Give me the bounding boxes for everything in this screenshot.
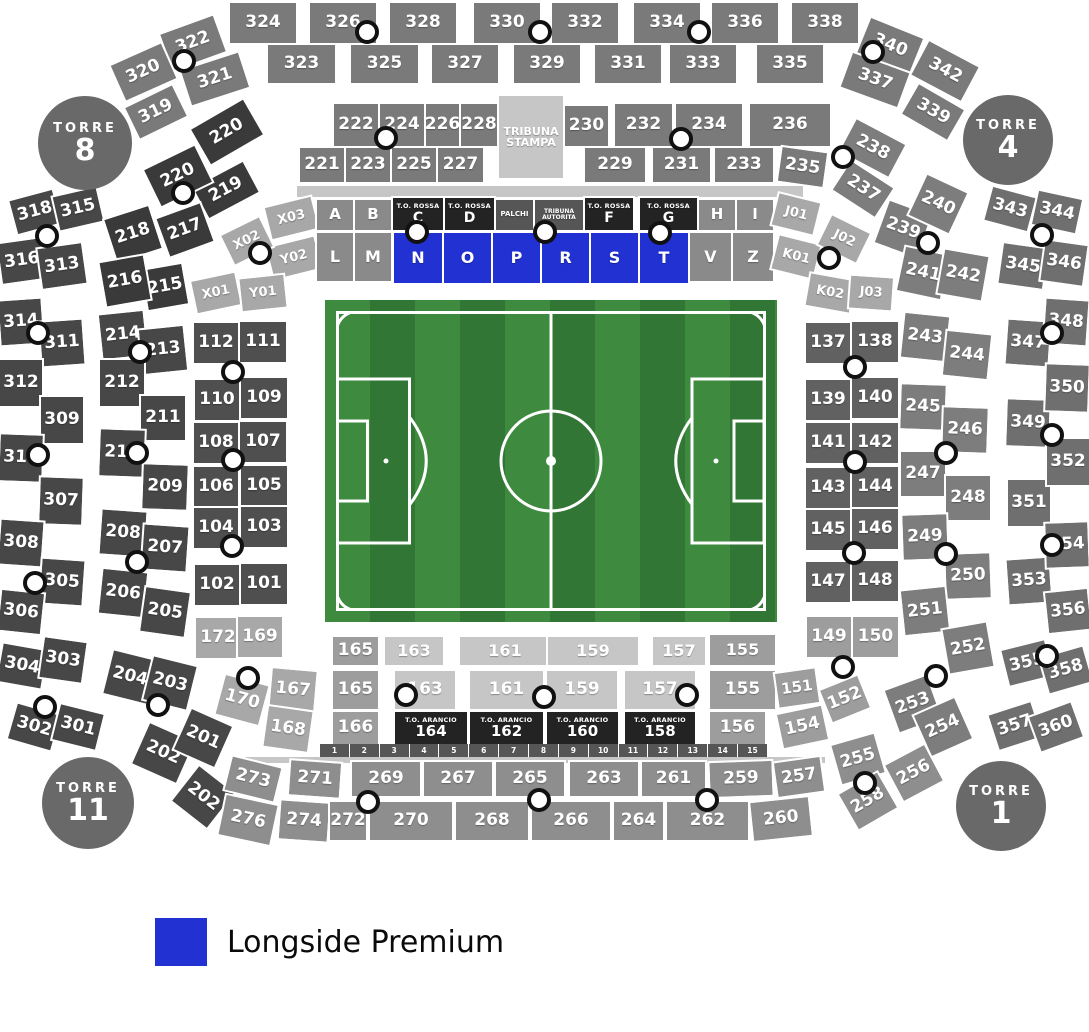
section-v[interactable]: V bbox=[690, 233, 731, 281]
gate-marker bbox=[128, 340, 152, 364]
section-160[interactable]: T.O. ARANCIO160 bbox=[547, 712, 618, 744]
section-140[interactable]: 140 bbox=[852, 378, 898, 418]
section-163[interactable]: 163 bbox=[385, 637, 443, 665]
gate-marker bbox=[236, 666, 260, 690]
section-245[interactable]: 245 bbox=[900, 384, 946, 430]
gate-marker bbox=[843, 450, 867, 474]
section-221[interactable]: 221 bbox=[300, 148, 344, 182]
gate-marker bbox=[248, 241, 272, 265]
section-159[interactable]: 159 bbox=[548, 637, 638, 665]
gate-marker bbox=[23, 571, 47, 595]
section-229[interactable]: 229 bbox=[585, 148, 645, 182]
section-243[interactable]: 243 bbox=[901, 313, 949, 361]
section-101[interactable]: 101 bbox=[241, 564, 287, 604]
section-242[interactable]: 242 bbox=[938, 250, 989, 301]
row-number-12: 12 bbox=[648, 744, 678, 757]
section-172[interactable]: 172 bbox=[196, 618, 240, 658]
gate-marker bbox=[532, 685, 556, 709]
section-351[interactable]: 351 bbox=[1008, 480, 1050, 526]
section-228[interactable]: 228 bbox=[461, 104, 497, 146]
gate-marker bbox=[405, 220, 429, 244]
gate-marker bbox=[669, 127, 693, 151]
gate-marker bbox=[934, 441, 958, 465]
section-j03[interactable]: J03 bbox=[849, 276, 893, 311]
section-155[interactable]: 155 bbox=[710, 671, 775, 709]
section-k02[interactable]: K02 bbox=[806, 273, 855, 312]
section-162[interactable]: T.O. ARANCIO162 bbox=[470, 712, 543, 744]
gate-marker bbox=[171, 181, 195, 205]
section-323[interactable]: 323 bbox=[268, 45, 335, 83]
section-palchi[interactable]: PALCHI bbox=[496, 200, 533, 230]
gate-marker bbox=[695, 788, 719, 812]
gate-marker bbox=[35, 224, 59, 248]
section-149[interactable]: 149 bbox=[807, 617, 851, 657]
gate-marker bbox=[374, 126, 398, 150]
section-267[interactable]: 267 bbox=[424, 762, 492, 796]
section-k01[interactable]: K01 bbox=[772, 235, 821, 278]
section-356[interactable]: 356 bbox=[1045, 589, 1089, 633]
legend-swatch-longside-premium bbox=[155, 918, 207, 966]
section-263[interactable]: 263 bbox=[570, 762, 638, 796]
section-216[interactable]: 216 bbox=[100, 256, 151, 307]
tower-number: 11 bbox=[67, 796, 109, 826]
section-251[interactable]: 251 bbox=[901, 587, 949, 635]
section-111[interactable]: 111 bbox=[240, 322, 286, 362]
section-161[interactable]: 161 bbox=[470, 671, 543, 709]
section-236[interactable]: 236 bbox=[750, 104, 830, 146]
gate-marker bbox=[648, 221, 672, 245]
section-212[interactable]: 212 bbox=[100, 360, 144, 406]
section-159[interactable]: 159 bbox=[547, 671, 617, 709]
section-145[interactable]: 145 bbox=[806, 510, 850, 550]
section-220[interactable]: 220 bbox=[191, 100, 263, 165]
section-235[interactable]: 235 bbox=[778, 147, 827, 187]
section-209[interactable]: 209 bbox=[142, 464, 188, 510]
section-161[interactable]: 161 bbox=[460, 637, 550, 665]
tower-4: TORRE4 bbox=[963, 95, 1053, 185]
section-232[interactable]: 232 bbox=[615, 104, 672, 146]
section-112[interactable]: 112 bbox=[194, 323, 238, 363]
section-257[interactable]: 257 bbox=[774, 757, 824, 797]
row-number-strip: 123456789101112131415 bbox=[320, 744, 768, 757]
gate-marker bbox=[916, 231, 940, 255]
tower-number: 4 bbox=[998, 133, 1019, 163]
tower-8: TORRE8 bbox=[38, 96, 132, 190]
gate-marker bbox=[26, 321, 50, 345]
section-343[interactable]: 343 bbox=[984, 187, 1035, 231]
section-309[interactable]: 309 bbox=[41, 397, 83, 443]
section-260[interactable]: 260 bbox=[750, 797, 812, 841]
section-324[interactable]: 324 bbox=[230, 3, 296, 43]
stadium-seat-map: 3243263283303323343363383233253273293313… bbox=[0, 0, 1089, 1032]
row-number-5: 5 bbox=[439, 744, 469, 757]
section-332[interactable]: 332 bbox=[552, 3, 618, 43]
gate-marker bbox=[843, 355, 867, 379]
row-number-6: 6 bbox=[469, 744, 499, 757]
section-d[interactable]: T.O. ROSSAD bbox=[445, 198, 494, 230]
section-105[interactable]: 105 bbox=[241, 466, 287, 506]
section-231[interactable]: 231 bbox=[653, 148, 710, 182]
section-301[interactable]: 301 bbox=[52, 704, 103, 750]
gate-marker bbox=[831, 655, 855, 679]
section-s[interactable]: S bbox=[591, 233, 638, 283]
section-244[interactable]: 244 bbox=[943, 331, 991, 379]
gate-marker bbox=[533, 220, 557, 244]
section-152[interactable]: 152 bbox=[820, 676, 870, 723]
section-110[interactable]: 110 bbox=[195, 380, 239, 420]
section-x03[interactable]: X03 bbox=[265, 197, 318, 239]
row-number-1: 1 bbox=[320, 744, 350, 757]
section-222[interactable]: 222 bbox=[334, 104, 378, 146]
section-274[interactable]: 274 bbox=[279, 800, 330, 841]
section-j01[interactable]: J01 bbox=[772, 193, 820, 234]
tower-number: 8 bbox=[75, 136, 96, 166]
gate-marker bbox=[831, 145, 855, 169]
section-b[interactable]: B bbox=[355, 200, 391, 230]
section-345[interactable]: 345 bbox=[998, 243, 1047, 289]
section-o[interactable]: O bbox=[444, 233, 491, 283]
section-329[interactable]: 329 bbox=[514, 45, 580, 83]
row-number-7: 7 bbox=[499, 744, 529, 757]
section-335[interactable]: 335 bbox=[757, 45, 823, 83]
row-number-8: 8 bbox=[529, 744, 559, 757]
section-350[interactable]: 350 bbox=[1045, 364, 1089, 411]
gate-marker bbox=[528, 20, 552, 44]
section-328[interactable]: 328 bbox=[390, 3, 456, 43]
section-x01[interactable]: X01 bbox=[191, 273, 241, 313]
section-215[interactable]: 215 bbox=[142, 264, 188, 310]
section-147[interactable]: 147 bbox=[806, 562, 850, 602]
section-306[interactable]: 306 bbox=[0, 590, 44, 634]
section-151[interactable]: 151 bbox=[775, 668, 819, 707]
gate-marker bbox=[221, 360, 245, 384]
section-155[interactable]: 155 bbox=[710, 635, 775, 665]
section-259[interactable]: 259 bbox=[709, 761, 772, 797]
section-p[interactable]: P bbox=[493, 233, 540, 283]
row-number-9: 9 bbox=[559, 744, 589, 757]
section-154[interactable]: 154 bbox=[777, 706, 828, 749]
row-number-15: 15 bbox=[738, 744, 768, 757]
section-225[interactable]: 225 bbox=[392, 148, 436, 182]
gate-marker bbox=[356, 790, 380, 814]
section-l[interactable]: L bbox=[317, 233, 353, 281]
row-number-13: 13 bbox=[678, 744, 708, 757]
section-227[interactable]: 227 bbox=[438, 148, 483, 182]
tower-11: TORRE11 bbox=[42, 757, 134, 849]
section-336[interactable]: 336 bbox=[712, 3, 778, 43]
section-103[interactable]: 103 bbox=[241, 507, 287, 547]
section-261[interactable]: 261 bbox=[642, 762, 705, 796]
section-168[interactable]: 168 bbox=[263, 706, 312, 752]
section-102[interactable]: 102 bbox=[195, 565, 239, 605]
section-270[interactable]: 270 bbox=[370, 802, 452, 840]
section-264[interactable]: 264 bbox=[614, 802, 663, 840]
section-m[interactable]: M bbox=[355, 233, 391, 281]
gate-marker bbox=[1035, 644, 1059, 668]
section-271[interactable]: 271 bbox=[289, 760, 341, 797]
section-166[interactable]: 166 bbox=[333, 712, 378, 744]
section-273[interactable]: 273 bbox=[225, 756, 282, 801]
gate-marker bbox=[125, 550, 149, 574]
section-109[interactable]: 109 bbox=[241, 378, 287, 418]
section-f[interactable]: T.O. ROSSAF bbox=[585, 198, 633, 230]
section-a[interactable]: A bbox=[317, 200, 353, 230]
section-252[interactable]: 252 bbox=[943, 623, 994, 674]
gate-marker bbox=[355, 20, 379, 44]
row-number-4: 4 bbox=[410, 744, 440, 757]
gate-marker bbox=[394, 683, 418, 707]
section-y02[interactable]: Y02 bbox=[267, 237, 321, 280]
legend-label: Longside Premium bbox=[227, 925, 504, 960]
row-number-11: 11 bbox=[619, 744, 649, 757]
section-164[interactable]: T.O. ARANCIO164 bbox=[395, 712, 467, 744]
section-157[interactable]: 157 bbox=[653, 637, 705, 665]
section-158[interactable]: T.O. ARANCIO158 bbox=[625, 712, 695, 744]
section-308[interactable]: 308 bbox=[0, 520, 43, 567]
gate-marker bbox=[125, 441, 149, 465]
gate-marker bbox=[1040, 533, 1064, 557]
section-169[interactable]: 169 bbox=[238, 617, 282, 657]
gate-marker bbox=[221, 448, 245, 472]
section-148[interactable]: 148 bbox=[852, 561, 898, 601]
section-y01[interactable]: Y01 bbox=[239, 275, 286, 311]
section-143[interactable]: 143 bbox=[806, 468, 850, 508]
section-307[interactable]: 307 bbox=[39, 477, 83, 524]
gate-marker bbox=[853, 771, 877, 795]
section-165[interactable]: 165 bbox=[333, 671, 378, 709]
tower-1: TORRE1 bbox=[956, 761, 1046, 851]
section-h[interactable]: H bbox=[699, 200, 735, 230]
section-333[interactable]: 333 bbox=[670, 45, 736, 83]
section-233[interactable]: 233 bbox=[715, 148, 773, 182]
section-tribuna-stampa[interactable]: TRIBUNA STAMPA bbox=[499, 96, 563, 178]
section-156[interactable]: 156 bbox=[710, 712, 765, 744]
section-150[interactable]: 150 bbox=[853, 617, 898, 657]
section-206[interactable]: 206 bbox=[99, 569, 147, 617]
section-230[interactable]: 230 bbox=[565, 106, 608, 146]
section-327[interactable]: 327 bbox=[432, 45, 498, 83]
section-276[interactable]: 276 bbox=[218, 795, 277, 845]
gate-marker bbox=[1030, 223, 1054, 247]
row-number-3: 3 bbox=[380, 744, 410, 757]
section-z[interactable]: Z bbox=[733, 233, 773, 281]
row-number-10: 10 bbox=[589, 744, 619, 757]
section-226[interactable]: 226 bbox=[426, 104, 459, 146]
section-268[interactable]: 268 bbox=[456, 802, 528, 840]
section-i[interactable]: I bbox=[737, 200, 773, 230]
concourse-band bbox=[297, 186, 803, 197]
section-211[interactable]: 211 bbox=[141, 396, 185, 440]
section-167[interactable]: 167 bbox=[269, 668, 316, 712]
gate-marker bbox=[675, 683, 699, 707]
section-346[interactable]: 346 bbox=[1040, 240, 1087, 285]
section-331[interactable]: 331 bbox=[595, 45, 661, 83]
gate-marker bbox=[687, 20, 711, 44]
pitch-lines-graphic bbox=[325, 300, 777, 622]
section-106[interactable]: 106 bbox=[194, 467, 238, 507]
section-165[interactable]: 165 bbox=[333, 637, 378, 665]
gate-marker bbox=[817, 246, 841, 270]
legend: Longside Premium bbox=[155, 918, 504, 966]
gate-marker bbox=[527, 788, 551, 812]
gate-marker bbox=[1040, 423, 1064, 447]
tower-number: 1 bbox=[991, 799, 1012, 829]
section-313[interactable]: 313 bbox=[37, 243, 86, 289]
section-315[interactable]: 315 bbox=[53, 187, 104, 230]
section-325[interactable]: 325 bbox=[351, 45, 418, 83]
gate-marker bbox=[924, 664, 948, 688]
gate-marker bbox=[33, 695, 57, 719]
section-218[interactable]: 218 bbox=[104, 206, 161, 262]
section-312[interactable]: 312 bbox=[0, 360, 42, 406]
section-248[interactable]: 248 bbox=[946, 476, 990, 520]
gate-marker bbox=[146, 693, 170, 717]
gate-marker bbox=[861, 40, 885, 64]
section-303[interactable]: 303 bbox=[39, 637, 86, 682]
row-number-2: 2 bbox=[350, 744, 380, 757]
football-pitch bbox=[325, 300, 777, 622]
section-205[interactable]: 205 bbox=[140, 587, 190, 637]
section-223[interactable]: 223 bbox=[346, 148, 390, 182]
gate-marker bbox=[26, 443, 50, 467]
row-number-14: 14 bbox=[708, 744, 738, 757]
gate-marker bbox=[842, 541, 866, 565]
section-338[interactable]: 338 bbox=[792, 3, 858, 43]
section-139[interactable]: 139 bbox=[806, 380, 850, 420]
gate-marker bbox=[1040, 321, 1064, 345]
section-137[interactable]: 137 bbox=[806, 323, 850, 363]
section-360[interactable]: 360 bbox=[1029, 703, 1083, 752]
section-107[interactable]: 107 bbox=[240, 422, 286, 462]
gate-marker bbox=[220, 534, 244, 558]
gate-marker bbox=[934, 542, 958, 566]
gate-marker bbox=[172, 49, 196, 73]
